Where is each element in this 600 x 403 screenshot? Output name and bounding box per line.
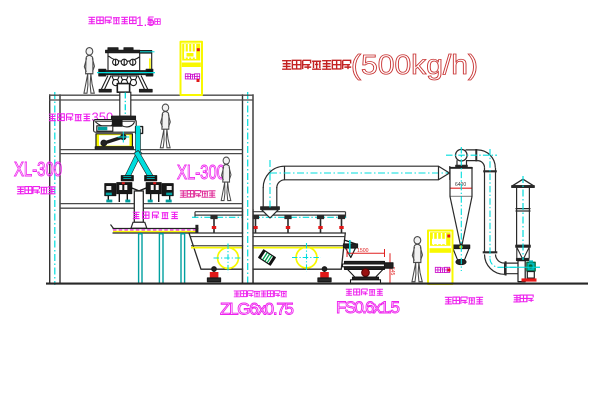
svg-text:FS0.6x1.5: FS0.6x1.5 [336, 298, 400, 317]
svg-text:XL-300: XL-300 [14, 159, 62, 181]
svg-text:1500: 1500 [357, 248, 369, 254]
svg-text:(500kg/h): (500kg/h) [351, 49, 478, 80]
svg-text:6400: 6400 [455, 182, 466, 188]
svg-text:1.5: 1.5 [136, 14, 155, 29]
svg-text:XL-300: XL-300 [177, 162, 225, 184]
svg-text:ZLG6x0.75: ZLG6x0.75 [220, 300, 294, 319]
